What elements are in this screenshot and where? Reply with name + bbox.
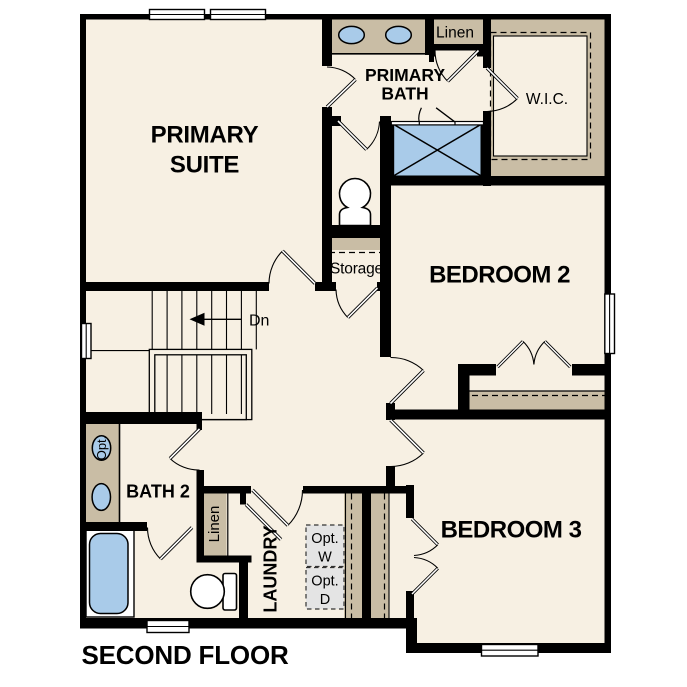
svg-text:Linen: Linen — [436, 25, 474, 42]
svg-text:SUITE: SUITE — [170, 151, 239, 178]
svg-text:BEDROOM 3: BEDROOM 3 — [441, 517, 582, 544]
svg-text:PRIMARY: PRIMARY — [151, 122, 259, 149]
svg-text:Opt.: Opt. — [94, 436, 109, 461]
svg-text:Storage: Storage — [330, 261, 383, 278]
svg-text:D: D — [320, 592, 330, 608]
svg-text:PRIMARY: PRIMARY — [365, 65, 445, 85]
svg-text:BATH: BATH — [381, 84, 428, 104]
svg-text:Opt.: Opt. — [311, 531, 338, 547]
svg-text:BEDROOM 2: BEDROOM 2 — [429, 262, 570, 289]
svg-text:LAUNDRY: LAUNDRY — [261, 525, 281, 612]
svg-text:BATH 2: BATH 2 — [126, 482, 190, 502]
svg-text:SECOND FLOOR: SECOND FLOOR — [82, 640, 289, 670]
svg-text:W: W — [318, 550, 332, 566]
svg-text:Linen: Linen — [206, 506, 223, 543]
svg-text:Opt.: Opt. — [311, 574, 338, 590]
svg-text:Dn: Dn — [249, 313, 269, 330]
svg-text:W.I.C.: W.I.C. — [526, 91, 568, 108]
